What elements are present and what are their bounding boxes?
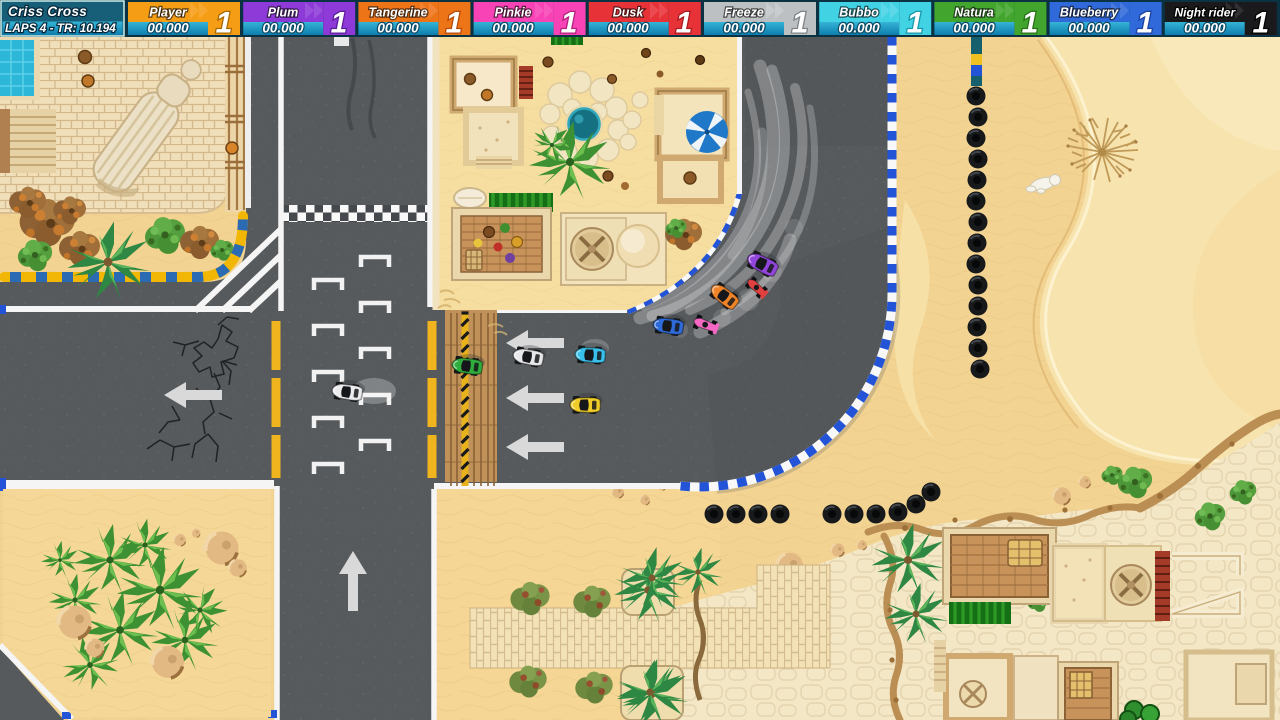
svg-text:Natura: Natura: [954, 6, 994, 20]
svg-text:Freeze: Freeze: [724, 6, 764, 20]
svg-text:1: 1: [676, 7, 693, 40]
svg-text:00.000: 00.000: [1184, 21, 1226, 36]
svg-text:00.000: 00.000: [1068, 21, 1110, 36]
svg-text:LAPS 4 - TR: 10.194: LAPS 4 - TR: 10.194: [5, 21, 116, 35]
svg-text:00.000: 00.000: [492, 21, 534, 36]
svg-text:Night rider: Night rider: [1174, 6, 1236, 20]
svg-text:1: 1: [792, 7, 809, 40]
svg-text:00.000: 00.000: [147, 21, 189, 36]
svg-text:Tangerine: Tangerine: [368, 6, 427, 20]
svg-text:Criss Cross: Criss Cross: [8, 4, 87, 19]
svg-text:1: 1: [1252, 7, 1269, 40]
svg-text:00.000: 00.000: [953, 21, 995, 36]
svg-text:00.000: 00.000: [723, 21, 765, 36]
svg-text:00.000: 00.000: [262, 21, 304, 36]
svg-text:1: 1: [331, 7, 348, 40]
svg-text:Pinkie: Pinkie: [495, 6, 532, 20]
svg-text:00.000: 00.000: [377, 21, 419, 36]
svg-text:1: 1: [1137, 7, 1154, 40]
svg-text:00.000: 00.000: [838, 21, 880, 36]
svg-text:Player: Player: [149, 6, 188, 20]
svg-text:Bubbo: Bubbo: [839, 6, 879, 20]
svg-text:1: 1: [561, 7, 578, 40]
svg-text:1: 1: [1022, 7, 1039, 40]
svg-text:1: 1: [446, 7, 463, 40]
svg-text:Blueberry: Blueberry: [1060, 6, 1119, 20]
svg-text:1: 1: [907, 7, 924, 40]
svg-text:1: 1: [216, 7, 233, 40]
svg-text:Dusk: Dusk: [613, 6, 645, 20]
svg-text:Plum: Plum: [268, 6, 299, 20]
svg-text:00.000: 00.000: [607, 21, 649, 36]
